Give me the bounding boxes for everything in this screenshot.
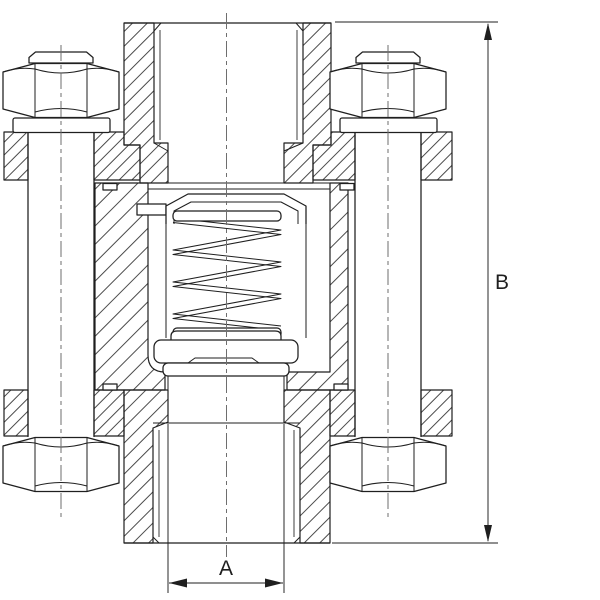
arrowhead-up [484,23,492,40]
dimension-a: A [168,424,284,593]
drawing-canvas: B A [0,0,600,600]
bottom-flange-plate-left [4,390,124,436]
cage-locating-tab [137,204,166,215]
valve-section-drawing: B A [0,0,600,600]
top-flange-plate-left [4,132,140,180]
arrowhead-down [484,525,492,542]
dimension-label-b: B [495,271,509,294]
top-flange-plate-right [313,132,452,180]
bottom-flange-plate-right [330,390,452,436]
arrowhead-right [265,579,283,588]
dimension-label-a: A [219,557,233,580]
top-port-cap [124,23,331,183]
arrowhead-left [169,579,187,588]
